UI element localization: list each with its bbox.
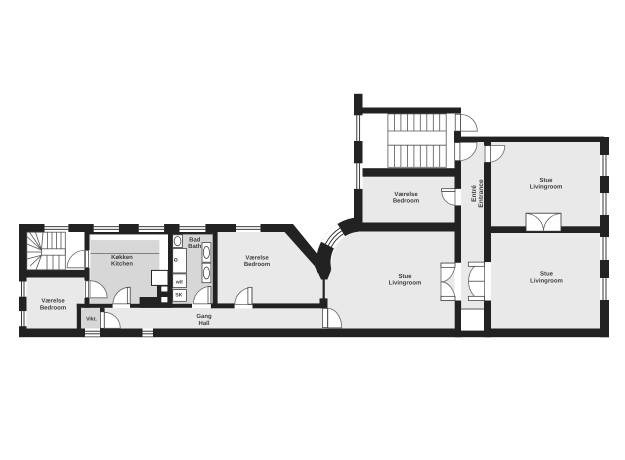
svg-text:Entrance: Entrance <box>478 179 485 208</box>
svg-text:Stue: Stue <box>539 177 553 184</box>
svg-text:Livingroom: Livingroom <box>389 279 422 286</box>
svg-text:Stue: Stue <box>540 271 554 278</box>
svg-text:w/t: w/t <box>175 280 183 286</box>
svg-text:Bad: Bad <box>189 236 201 243</box>
svg-text:Køkken: Køkken <box>111 254 133 261</box>
svg-text:Hall: Hall <box>198 320 209 327</box>
svg-text:Vikt.: Vikt. <box>86 316 97 322</box>
svg-text:Bedroom: Bedroom <box>40 304 66 311</box>
svg-text:Stue: Stue <box>398 273 412 280</box>
svg-text:Bedroom: Bedroom <box>393 198 419 205</box>
svg-text:Værelse: Værelse <box>41 298 65 305</box>
svg-text:Livingroom: Livingroom <box>530 184 563 191</box>
svg-text:Gang: Gang <box>196 313 212 320</box>
svg-text:Værelse: Værelse <box>394 191 418 198</box>
svg-text:Bedroom: Bedroom <box>244 261 270 268</box>
svg-text:Livingroom: Livingroom <box>530 277 563 284</box>
svg-text:Værelse: Værelse <box>245 255 269 262</box>
svg-text:SK: SK <box>175 292 182 298</box>
svg-text:Kitchen: Kitchen <box>111 260 133 267</box>
svg-text:Bath: Bath <box>188 243 202 250</box>
